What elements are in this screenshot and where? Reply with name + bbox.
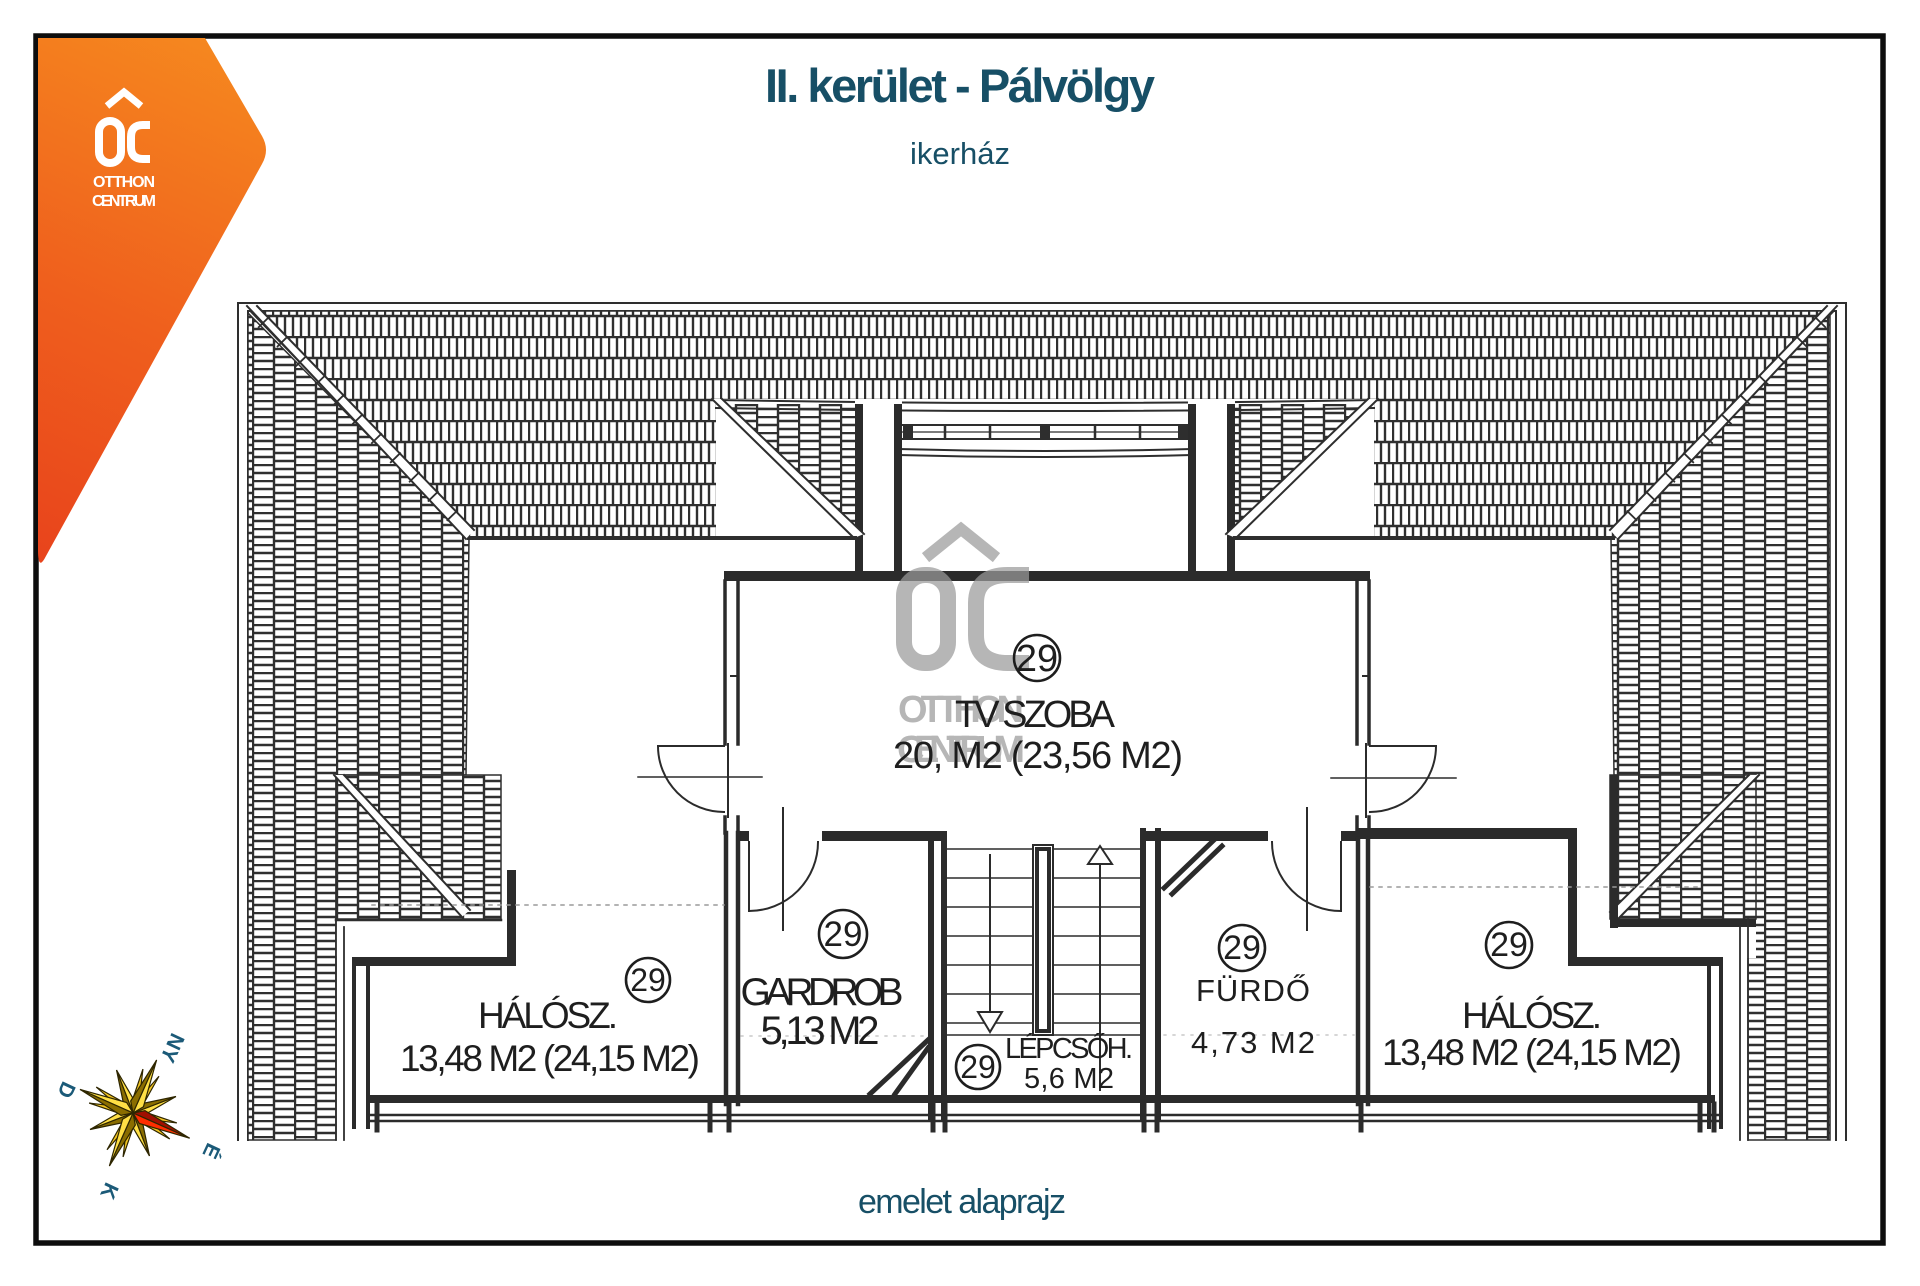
svg-text:20, M2 (23,56 M2): 20, M2 (23,56 M2) — [893, 735, 1183, 777]
svg-text:29: 29 — [1490, 926, 1528, 964]
svg-text:29: 29 — [1016, 638, 1058, 680]
svg-text:TV SZOBA: TV SZOBA — [955, 694, 1116, 736]
svg-text:5,13 M2: 5,13 M2 — [761, 1009, 880, 1053]
svg-text:GARDROB: GARDROB — [741, 971, 904, 1014]
svg-text:29: 29 — [824, 915, 863, 954]
svg-text:13,48 M2 (24,15 M2): 13,48 M2 (24,15 M2) — [1382, 1032, 1682, 1073]
svg-text:OTTHON: OTTHON — [93, 174, 155, 191]
svg-text:FÜRDŐ: FÜRDŐ — [1196, 973, 1310, 1008]
svg-text:HÁLÓSZ.: HÁLÓSZ. — [1462, 995, 1602, 1036]
svg-text:5,6 M2: 5,6 M2 — [1024, 1063, 1114, 1095]
svg-text:29: 29 — [960, 1049, 996, 1085]
svg-text:HÁLÓSZ.: HÁLÓSZ. — [478, 995, 618, 1036]
svg-text:29: 29 — [1223, 929, 1261, 967]
svg-text:29: 29 — [630, 962, 666, 998]
svg-text:CENTRUM: CENTRUM — [92, 193, 156, 210]
svg-text:emelet alaprajz: emelet alaprajz — [858, 1183, 1066, 1221]
svg-text:LÉPCSŐH.: LÉPCSŐH. — [1005, 1032, 1133, 1065]
svg-text:13,48 M2 (24,15 M2): 13,48 M2 (24,15 M2) — [400, 1038, 700, 1079]
svg-text:II. kerület - Pálvölgy: II. kerület - Pálvölgy — [765, 59, 1155, 112]
svg-text:ikerház: ikerház — [910, 136, 1010, 171]
